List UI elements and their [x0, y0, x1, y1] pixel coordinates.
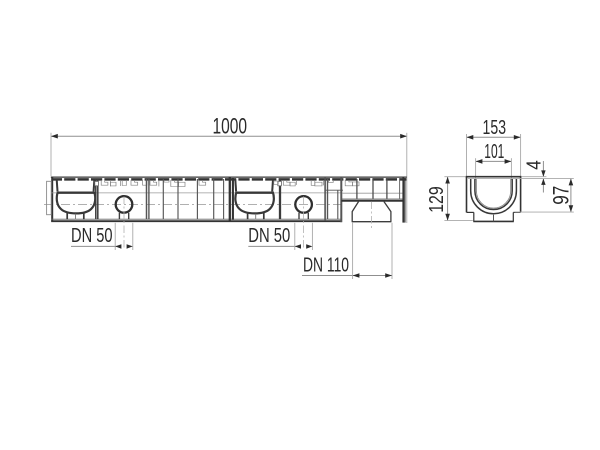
svg-text:DN 50: DN 50 [71, 225, 113, 247]
svg-text:DN 50: DN 50 [248, 225, 290, 247]
svg-text:4: 4 [523, 160, 545, 170]
svg-text:129: 129 [426, 186, 448, 213]
svg-text:1000: 1000 [213, 113, 248, 138]
svg-text:101: 101 [484, 140, 504, 163]
svg-text:153: 153 [483, 116, 507, 139]
svg-text:DN 110: DN 110 [303, 255, 349, 277]
svg-text:97: 97 [549, 186, 574, 205]
